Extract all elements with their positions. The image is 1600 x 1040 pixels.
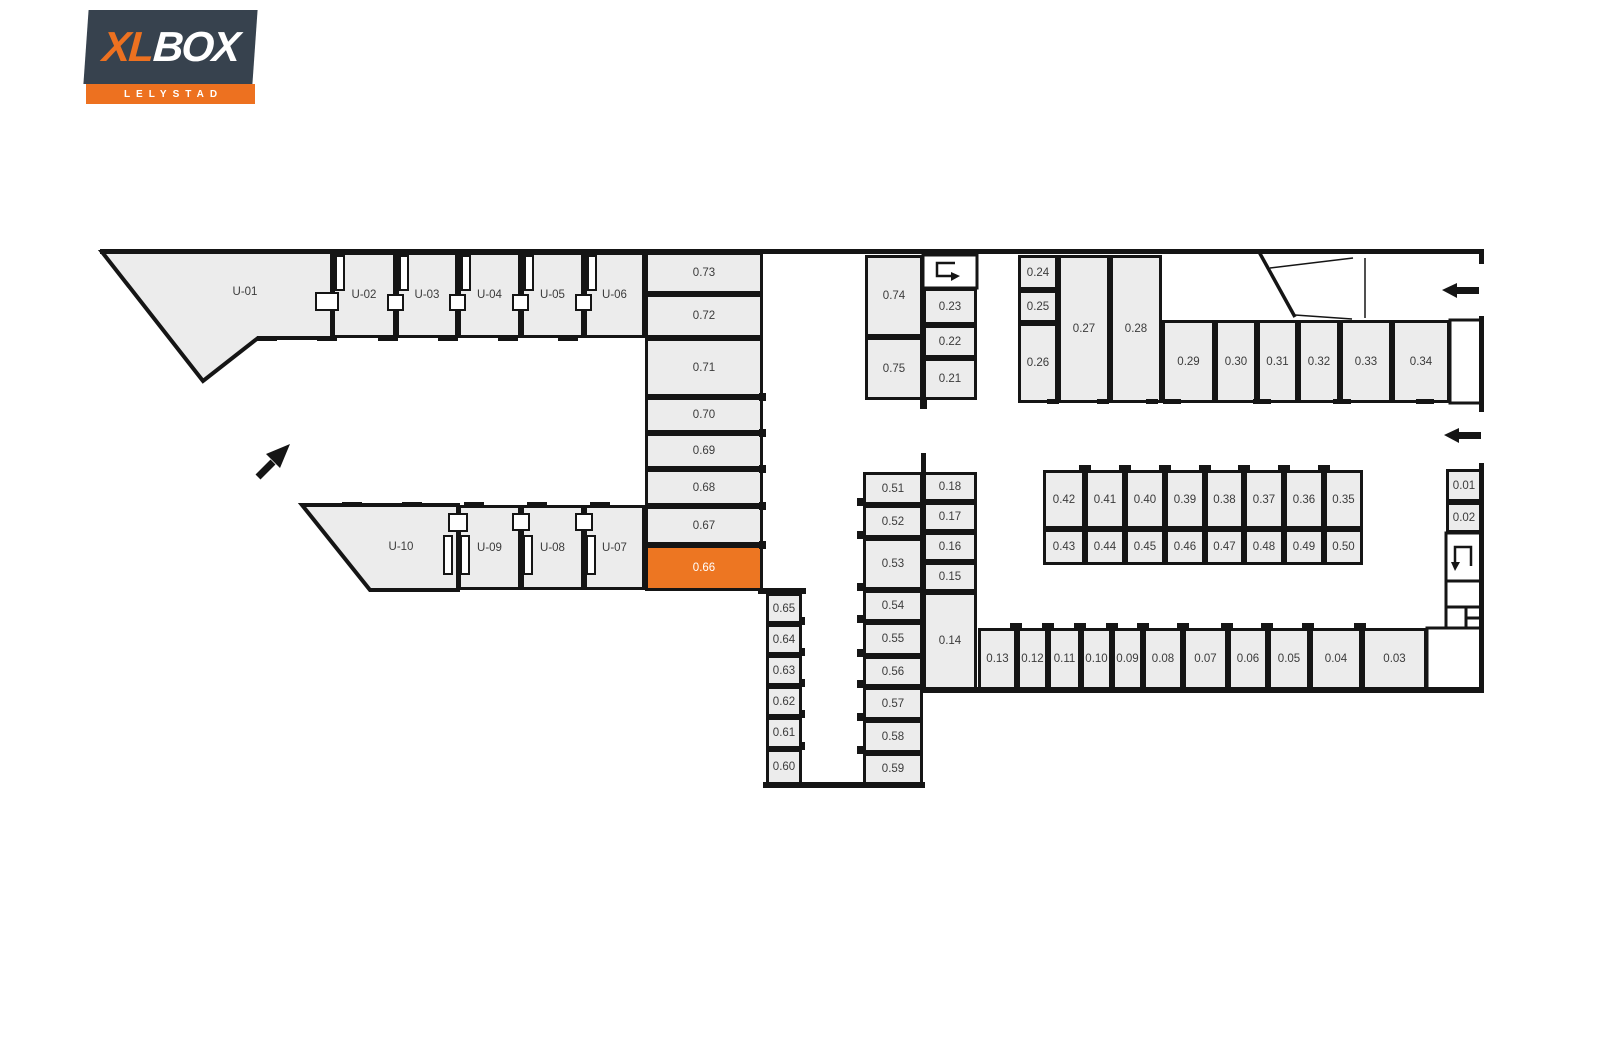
unit-0-25[interactable]: 0.25 [1018,290,1058,323]
unit-label: 0.22 [939,336,961,348]
unit-0-68[interactable]: 0.68 [645,469,763,506]
unit-label: 0.28 [1125,323,1147,335]
unit-0-30[interactable]: 0.30 [1215,320,1257,403]
unit-0-23[interactable]: 0.23 [923,288,977,325]
unit-label: 0.11 [1054,653,1076,665]
unit-label: 0.01 [1453,480,1475,492]
unit-0-32[interactable]: 0.32 [1298,320,1340,403]
unit-0-64[interactable]: 0.64 [766,624,802,655]
unit-0-26[interactable]: 0.26 [1018,323,1058,403]
unit-0-05[interactable]: 0.05 [1268,628,1310,690]
unit-0-13[interactable]: 0.13 [978,628,1017,690]
unit-label: 0.35 [1332,494,1354,506]
unit-label: 0.42 [1053,494,1075,506]
unit-label: 0.25 [1027,301,1049,313]
unit-label: 0.64 [773,634,795,646]
unit-0-69[interactable]: 0.69 [645,433,763,469]
unit-0-15[interactable]: 0.15 [923,562,977,592]
unit-0-62[interactable]: 0.62 [766,686,802,717]
unit-0-56[interactable]: 0.56 [863,656,923,687]
unit-label: 0.27 [1073,323,1095,335]
unit-0-28[interactable]: 0.28 [1110,255,1162,403]
unit-label: 0.61 [773,727,795,739]
unit-label: 0.40 [1134,494,1156,506]
unit-0-55[interactable]: 0.55 [863,622,923,656]
unit-0-07[interactable]: 0.07 [1183,628,1228,690]
unit-label: 0.41 [1094,494,1116,506]
unit-label: U-03 [415,289,440,301]
unit-label: 0.67 [693,520,715,532]
unit-label: 0.54 [882,600,904,612]
unit-label: 0.04 [1325,653,1347,665]
unit-label: 0.23 [939,301,961,313]
unit-0-73[interactable]: 0.73 [645,252,763,294]
unit-label: 0.51 [882,483,904,495]
unit-0-65[interactable]: 0.65 [766,593,802,624]
unit-0-71[interactable]: 0.71 [645,338,763,397]
unit-0-43[interactable]: 0.43 [1043,529,1085,565]
unit-0-01[interactable]: 0.01 [1446,469,1482,502]
unit-0-66[interactable]: 0.66 [645,545,763,591]
unit-label: 0.24 [1027,267,1049,279]
unit-0-38[interactable]: 0.38 [1205,470,1244,529]
unit-label: 0.69 [693,445,715,457]
unit-0-34[interactable]: 0.34 [1392,320,1450,403]
unit-label: 0.68 [693,482,715,494]
unit-0-61[interactable]: 0.61 [766,717,802,749]
unit-0-50[interactable]: 0.50 [1324,529,1363,565]
unit-label: 0.03 [1383,653,1405,665]
unit-label: 0.37 [1253,494,1275,506]
unit-U-04[interactable]: U-04 [458,252,521,338]
unit-label: 0.60 [773,761,795,773]
unit-label: 0.33 [1355,356,1377,368]
unit-0-24[interactable]: 0.24 [1018,255,1058,290]
unit-label: 0.15 [939,571,961,583]
unit-0-41[interactable]: 0.41 [1085,470,1125,529]
unit-0-27[interactable]: 0.27 [1058,255,1110,403]
unit-label: 0.43 [1053,541,1075,553]
unit-label: 0.52 [882,516,904,528]
unit-0-33[interactable]: 0.33 [1340,320,1392,403]
unit-label: 0.10 [1085,653,1107,665]
unit-0-57[interactable]: 0.57 [863,687,923,720]
unit-0-36[interactable]: 0.36 [1284,470,1324,529]
unit-0-70[interactable]: 0.70 [645,397,763,433]
unit-label: 0.45 [1134,541,1156,553]
unit-label: U-02 [352,289,377,301]
unit-label: 0.70 [693,409,715,421]
unit-label: 0.02 [1453,512,1475,524]
unit-0-02[interactable]: 0.02 [1446,502,1482,533]
unit-U-10[interactable]: U-10 [361,537,441,557]
unit-label: 0.13 [986,653,1008,665]
unit-label: 0.29 [1177,356,1199,368]
unit-label: U-06 [602,289,627,301]
unit-label: 0.36 [1293,494,1315,506]
unit-label: 0.06 [1237,653,1259,665]
logo-wordmark: XL BOX [83,10,257,84]
unit-0-45[interactable]: 0.45 [1125,529,1165,565]
unit-0-12[interactable]: 0.12 [1017,628,1048,690]
floorplan: U-01U-02U-03U-04U-05U-06U-07U-08U-09U-10… [0,0,1600,1040]
unit-0-29[interactable]: 0.29 [1162,320,1215,403]
unit-label: 0.48 [1253,541,1275,553]
unit-label: 0.31 [1266,356,1288,368]
units-layer: U-01U-02U-03U-04U-05U-06U-07U-08U-09U-10… [0,0,1600,1040]
unit-0-09[interactable]: 0.09 [1112,628,1143,690]
unit-0-10[interactable]: 0.10 [1081,628,1112,690]
unit-0-72[interactable]: 0.72 [645,294,763,338]
unit-0-63[interactable]: 0.63 [766,655,802,686]
unit-label: 0.73 [693,267,715,279]
unit-label: 0.56 [882,666,904,678]
unit-label: U-01 [233,286,258,298]
logo-xl-text: XL [101,23,155,71]
unit-label: 0.09 [1116,653,1138,665]
logo-city-strip: LELYSTAD [86,84,255,104]
unit-label: 0.44 [1094,541,1116,553]
unit-0-54[interactable]: 0.54 [863,590,923,622]
unit-label: 0.63 [773,665,795,677]
unit-0-40[interactable]: 0.40 [1125,470,1165,529]
unit-0-11[interactable]: 0.11 [1048,628,1081,690]
unit-label: 0.72 [693,310,715,322]
unit-0-47[interactable]: 0.47 [1205,529,1244,565]
unit-label: 0.74 [883,290,905,302]
unit-0-46[interactable]: 0.46 [1165,529,1205,565]
unit-0-35[interactable]: 0.35 [1324,470,1363,529]
unit-0-37[interactable]: 0.37 [1244,470,1284,529]
unit-label: 0.66 [693,562,715,574]
unit-0-53[interactable]: 0.53 [863,538,923,590]
unit-label: 0.57 [882,698,904,710]
unit-label: 0.62 [773,696,795,708]
unit-label: 0.21 [939,373,961,385]
unit-label: 0.08 [1152,653,1174,665]
unit-label: 0.26 [1027,357,1049,369]
unit-0-58[interactable]: 0.58 [863,720,923,753]
unit-label: 0.49 [1293,541,1315,553]
unit-U-01[interactable]: U-01 [205,282,285,302]
unit-label: 0.34 [1410,356,1432,368]
unit-label: 0.18 [939,481,961,493]
unit-label: 0.39 [1174,494,1196,506]
unit-0-67[interactable]: 0.67 [645,506,763,545]
xlbox-logo: XL BOX LELYSTAD [86,10,255,104]
unit-label: 0.14 [939,635,961,647]
unit-label: 0.65 [773,603,795,615]
unit-0-03[interactable]: 0.03 [1362,628,1427,690]
unit-0-48[interactable]: 0.48 [1244,529,1284,565]
unit-0-21[interactable]: 0.21 [923,358,977,400]
unit-0-75[interactable]: 0.75 [865,337,923,400]
unit-U-06[interactable]: U-06 [584,252,645,338]
unit-0-16[interactable]: 0.16 [923,532,977,562]
unit-label: 0.50 [1332,541,1354,553]
unit-label: U-04 [477,289,502,301]
unit-label: U-09 [477,542,502,554]
unit-0-59[interactable]: 0.59 [863,753,923,785]
unit-0-52[interactable]: 0.52 [863,505,923,538]
unit-U-09[interactable]: U-09 [458,505,521,590]
unit-label: U-10 [389,541,414,553]
unit-0-18[interactable]: 0.18 [923,472,977,502]
unit-0-22[interactable]: 0.22 [923,325,977,358]
unit-label: 0.46 [1174,541,1196,553]
unit-label: U-08 [540,542,565,554]
unit-0-42[interactable]: 0.42 [1043,470,1085,529]
unit-0-49[interactable]: 0.49 [1284,529,1324,565]
unit-label: 0.38 [1213,494,1235,506]
unit-0-17[interactable]: 0.17 [923,502,977,532]
unit-label: U-05 [540,289,565,301]
unit-label: 0.59 [882,763,904,775]
unit-label: U-07 [602,542,627,554]
unit-U-05[interactable]: U-05 [521,252,584,338]
unit-0-14[interactable]: 0.14 [923,592,977,690]
unit-label: 0.58 [882,731,904,743]
unit-label: 0.47 [1213,541,1235,553]
unit-U-07[interactable]: U-07 [584,505,645,590]
unit-0-44[interactable]: 0.44 [1085,529,1125,565]
unit-U-08[interactable]: U-08 [521,505,584,590]
unit-0-39[interactable]: 0.39 [1165,470,1205,529]
unit-label: 0.30 [1225,356,1247,368]
unit-0-08[interactable]: 0.08 [1143,628,1183,690]
unit-0-31[interactable]: 0.31 [1257,320,1298,403]
unit-0-60[interactable]: 0.60 [766,749,802,785]
unit-0-06[interactable]: 0.06 [1228,628,1268,690]
unit-0-04[interactable]: 0.04 [1310,628,1362,690]
unit-label: 0.53 [882,558,904,570]
unit-label: 0.12 [1021,653,1043,665]
unit-label: 0.17 [939,511,961,523]
unit-label: 0.55 [882,633,904,645]
unit-U-02[interactable]: U-02 [332,252,396,338]
logo-box-text: BOX [152,23,240,71]
unit-0-51[interactable]: 0.51 [863,472,923,505]
unit-label: 0.05 [1278,653,1300,665]
unit-label: 0.16 [939,541,961,553]
unit-label: 0.75 [883,363,905,375]
unit-label: 0.32 [1308,356,1330,368]
unit-U-03[interactable]: U-03 [396,252,458,338]
unit-label: 0.07 [1194,653,1216,665]
unit-label: 0.71 [693,362,715,374]
unit-0-74[interactable]: 0.74 [865,255,923,337]
